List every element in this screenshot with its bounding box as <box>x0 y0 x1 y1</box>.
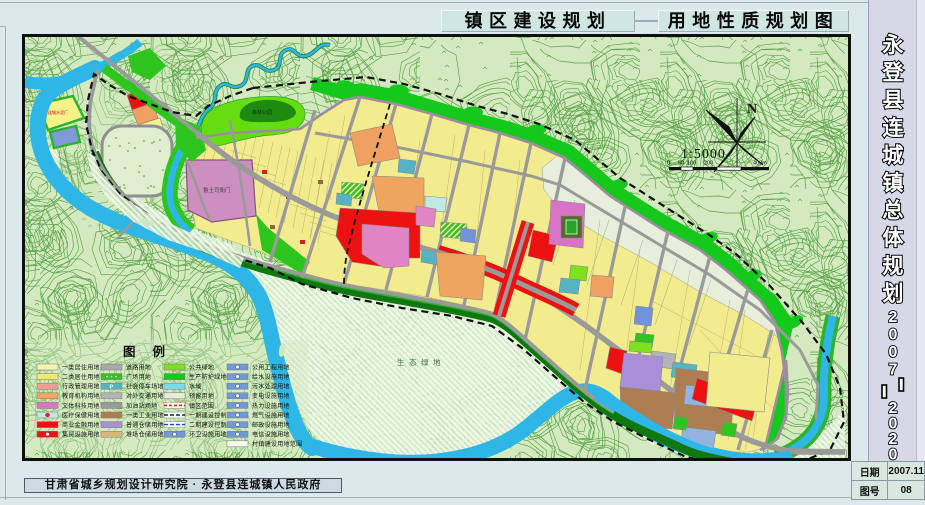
svg-text:污水处理用地: 污水处理用地 <box>252 383 290 391</box>
svg-text:城: 城 <box>883 143 904 167</box>
svg-text:生产防护绿地: 生产防护绿地 <box>189 373 227 381</box>
svg-text:加油站场地: 加油站场地 <box>126 402 158 410</box>
svg-text:鲁土司衙门: 鲁土司衙门 <box>203 186 231 194</box>
svg-text:图例: 图例 <box>123 344 182 359</box>
svg-text:100: 100 <box>687 161 696 167</box>
svg-text:登: 登 <box>882 61 905 85</box>
svg-text:热力设施用地: 热力设施用地 <box>252 402 290 410</box>
svg-text:体: 体 <box>883 227 905 250</box>
svg-text:环卫设施用地: 环卫设施用地 <box>189 431 227 439</box>
svg-text:森林公园: 森林公园 <box>252 109 272 116</box>
svg-text:集贸设施用地: 集贸设施用地 <box>62 431 100 439</box>
svg-text:普通仓储用地: 普通仓储用地 <box>126 421 164 429</box>
svg-text:给水设施用地: 给水设施用地 <box>252 373 290 381</box>
svg-text:永: 永 <box>882 34 904 57</box>
svg-text:二类居住用地: 二类居住用地 <box>62 373 100 381</box>
svg-text:行政管理用地: 行政管理用地 <box>62 383 100 391</box>
svg-text:生态绿地: 生态绿地 <box>397 357 445 367</box>
svg-text:医疗保健用地: 医疗保健用地 <box>62 411 100 419</box>
svg-text:P: P <box>110 384 114 390</box>
svg-text:200: 200 <box>704 161 713 167</box>
svg-text:对外交通用地: 对外交通用地 <box>126 392 164 400</box>
svg-text:商业金融用地: 商业金融用地 <box>62 421 100 429</box>
svg-text:公用工程用地: 公用工程用地 <box>252 363 290 371</box>
svg-text:0: 0 <box>667 161 670 167</box>
svg-text:2: 2 <box>889 309 898 326</box>
svg-text:400m: 400m <box>753 161 767 167</box>
svg-text:邮政设施用地: 邮政设施用地 <box>252 421 290 429</box>
svg-text:变电设施用地: 变电设施用地 <box>252 392 290 400</box>
svg-text:电信设施用地: 电信设施用地 <box>252 431 290 439</box>
svg-text:0: 0 <box>889 344 898 361</box>
svg-text:水域: 水域 <box>189 383 202 391</box>
svg-text:规: 规 <box>883 255 904 278</box>
svg-text:2: 2 <box>889 400 898 417</box>
svg-text:划: 划 <box>883 282 904 305</box>
svg-text:道路用地: 道路用地 <box>126 363 151 371</box>
svg-text:一类居住用地: 一类居住用地 <box>62 363 100 371</box>
svg-text:公共绿地: 公共绿地 <box>189 363 214 371</box>
svg-text:燃气设施用地: 燃气设施用地 <box>252 411 290 419</box>
svg-text:N: N <box>747 102 757 117</box>
svg-text:总: 总 <box>883 199 904 223</box>
svg-text:一类工业用地: 一类工业用地 <box>126 411 164 419</box>
svg-text:2: 2 <box>889 431 898 448</box>
svg-text:广场用地: 广场用地 <box>126 373 151 381</box>
svg-text:连: 连 <box>883 116 905 140</box>
svg-text:文体科技用地: 文体科技用地 <box>62 402 100 410</box>
svg-text:镇: 镇 <box>883 172 904 195</box>
svg-text:堆场仓储用地: 堆场仓储用地 <box>126 431 164 439</box>
svg-text:镇区范围: 镇区范围 <box>189 402 214 410</box>
svg-text:预留用地: 预留用地 <box>189 392 214 400</box>
svg-text:0: 0 <box>889 327 898 344</box>
svg-text:7: 7 <box>889 362 898 379</box>
svg-text:村镇建设用地范围: 村镇建设用地范围 <box>252 440 302 448</box>
svg-text:县: 县 <box>883 89 904 112</box>
svg-text:0: 0 <box>889 416 898 433</box>
svg-text:社会停车场地: 社会停车场地 <box>126 383 164 391</box>
svg-text:50: 50 <box>678 161 684 167</box>
svg-text:连城水泥厂: 连城水泥厂 <box>48 109 68 115</box>
svg-text:教育机构用地: 教育机构用地 <box>62 392 100 400</box>
